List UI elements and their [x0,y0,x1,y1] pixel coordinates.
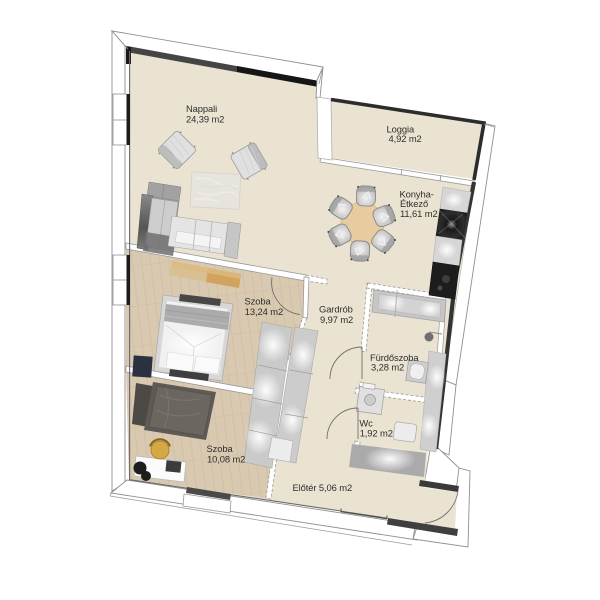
svg-text:10,08 m2: 10,08 m2 [207,454,245,465]
svg-text:Szoba: Szoba [245,296,272,307]
svg-text:24,39 m2: 24,39 m2 [186,114,224,125]
svg-text:Gardrób: Gardrób [319,304,353,315]
svg-text:4,92 m2: 4,92 m2 [389,133,422,144]
svg-text:1,92 m2: 1,92 m2 [360,428,393,439]
svg-text:13,24 m2: 13,24 m2 [245,306,283,317]
svg-text:Nappali: Nappali [186,103,217,114]
svg-text:11,61 m2: 11,61 m2 [400,208,438,219]
svg-text:Szoba: Szoba [207,443,234,454]
svg-text:Előtér 5,06 m2: Előtér 5,06 m2 [293,482,353,493]
svg-text:9,97 m2: 9,97 m2 [320,314,353,325]
svg-text:3,28 m2: 3,28 m2 [371,362,404,373]
